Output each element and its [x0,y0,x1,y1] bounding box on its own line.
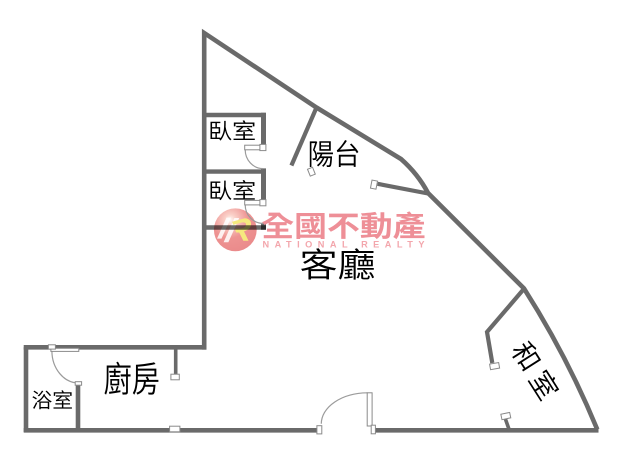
svg-text:NATIONAL REALTY: NATIONAL REALTY [263,240,425,250]
